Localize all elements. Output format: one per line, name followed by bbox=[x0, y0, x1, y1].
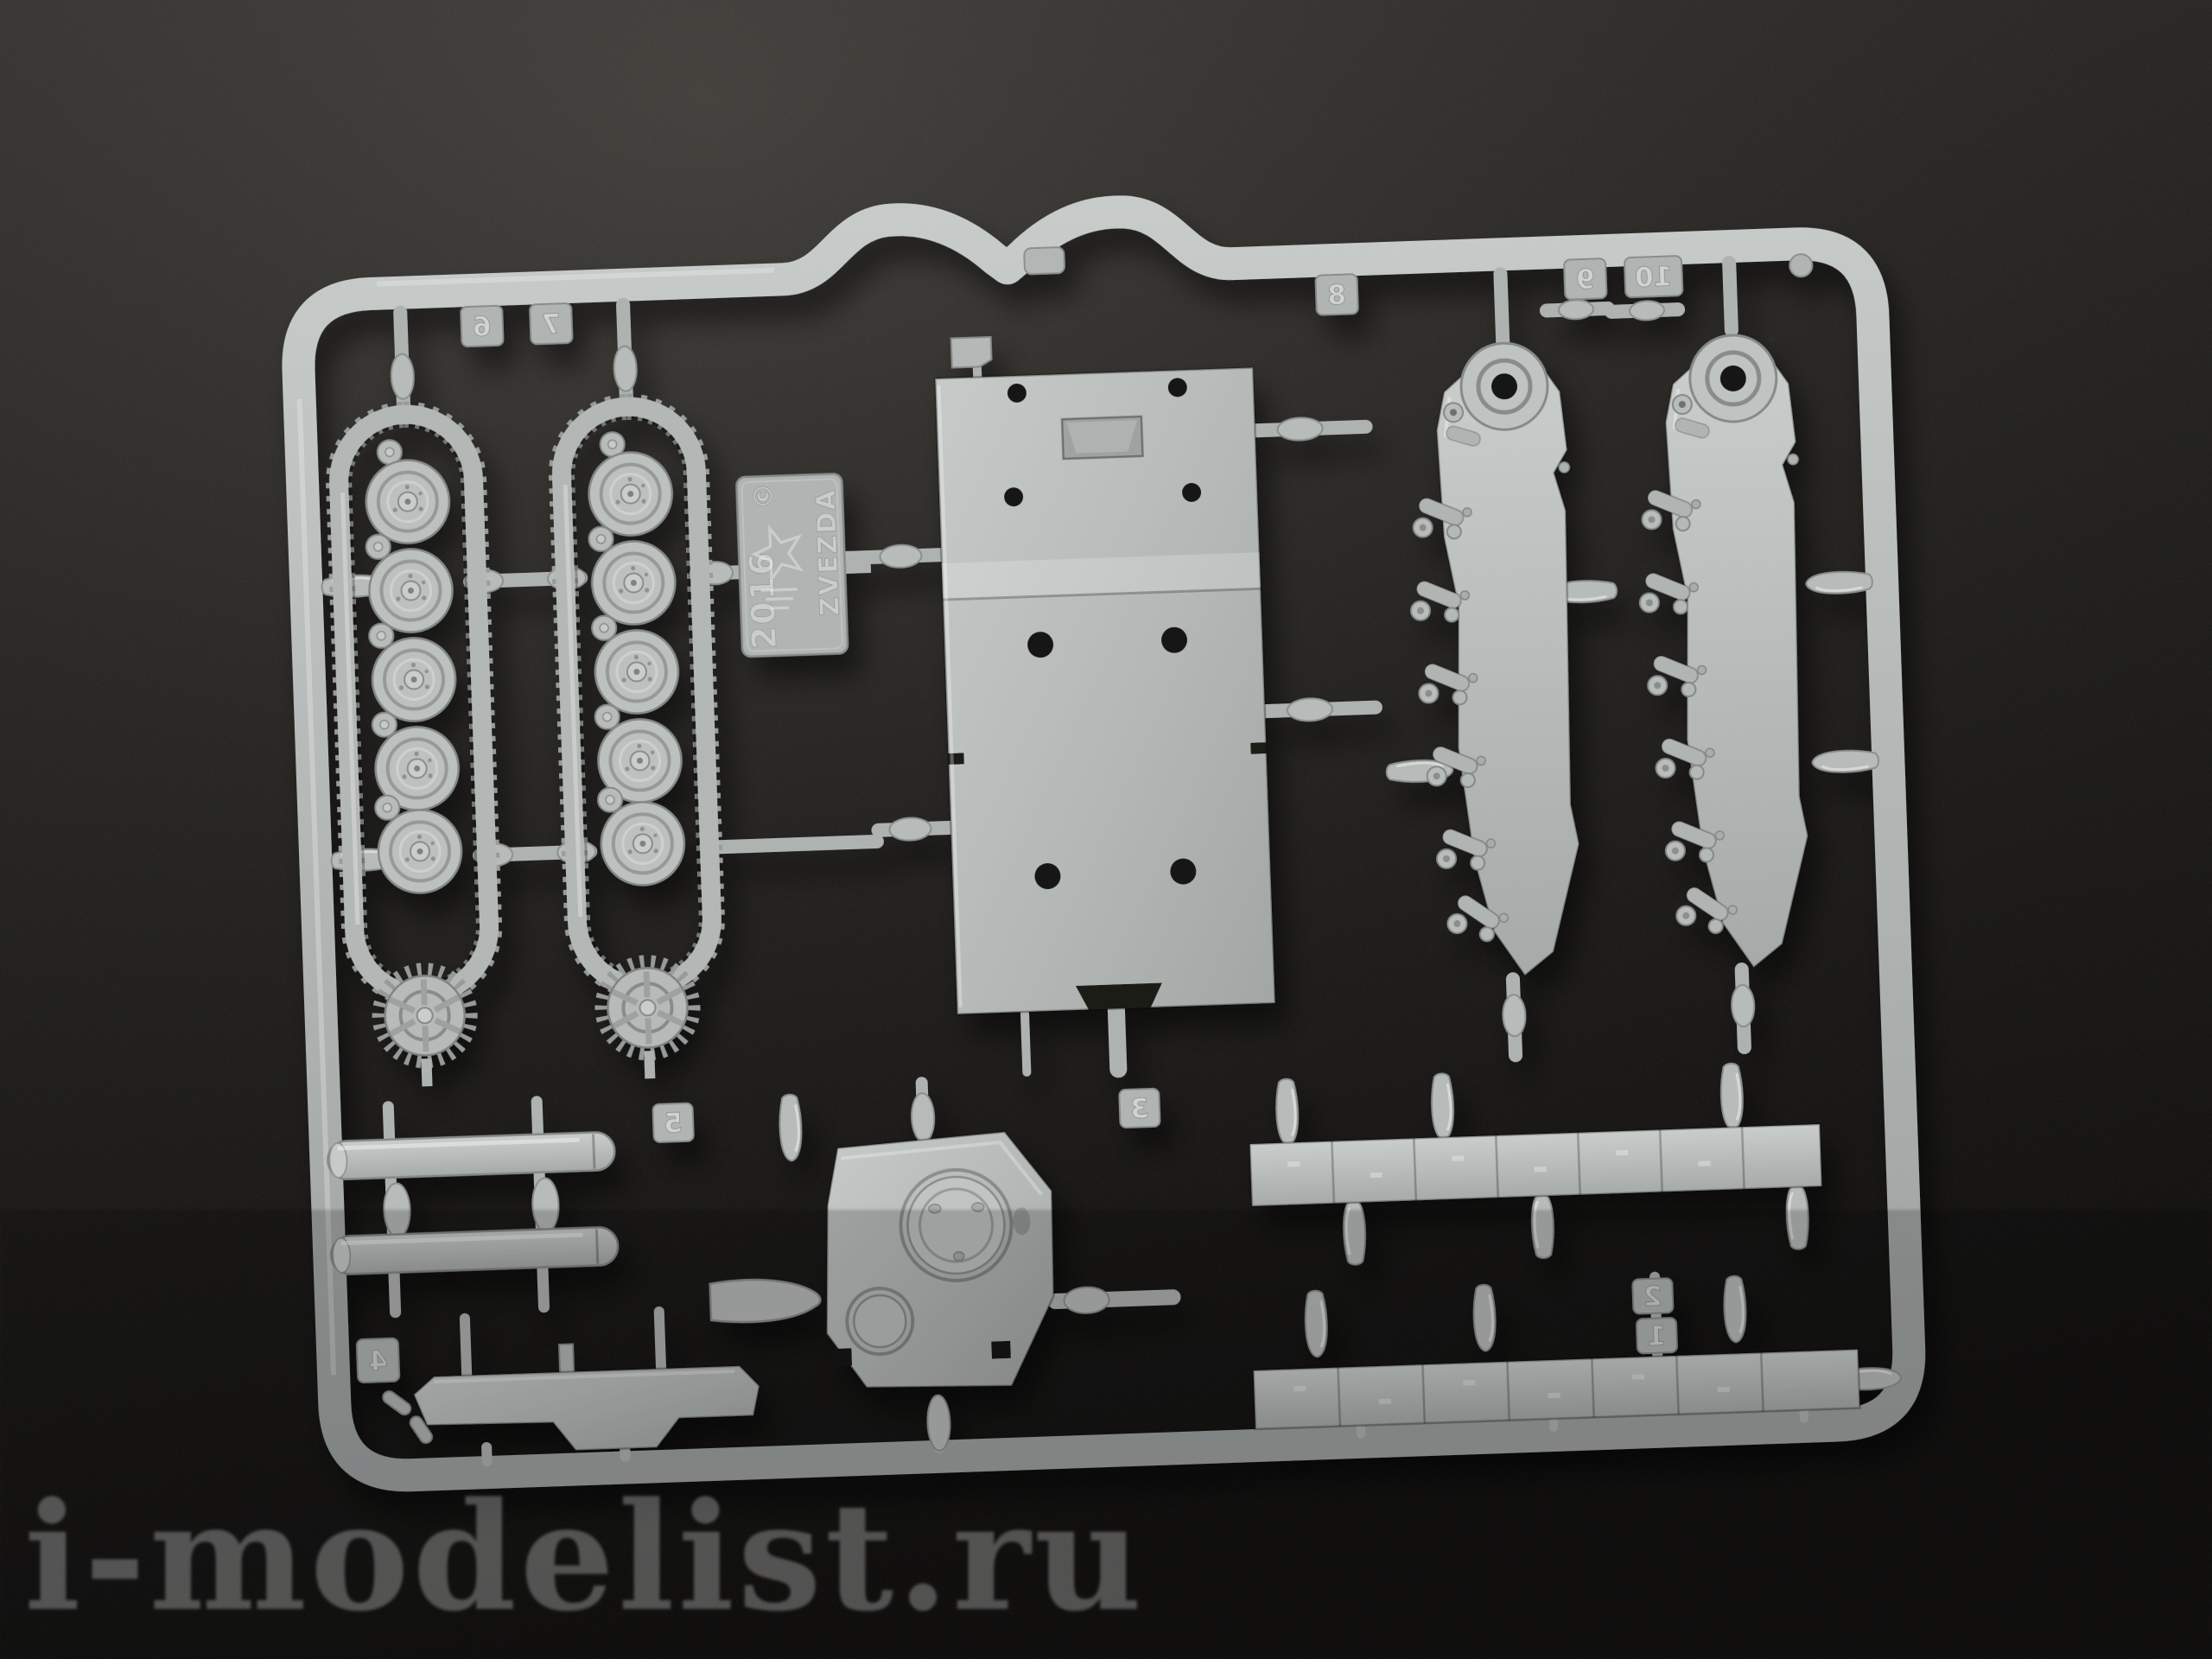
photo-stage: 2016 ZVEZDA © bbox=[0, 0, 2212, 1659]
watermark-text: i-modelist.ru bbox=[24, 1469, 1146, 1644]
sprue-photo: 2016 ZVEZDA © bbox=[0, 0, 2212, 1659]
